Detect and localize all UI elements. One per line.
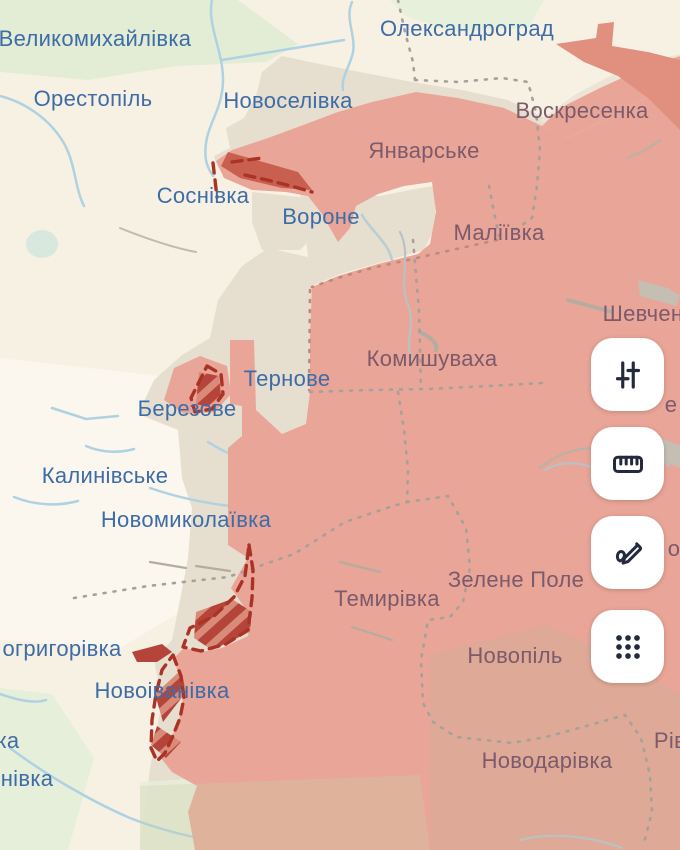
map-app: ВеликомихайлівкаОлександроградОрестопіль… [0, 0, 680, 850]
draw-button[interactable] [591, 516, 664, 589]
sliders-icon [610, 357, 646, 393]
measure-button[interactable] [591, 427, 664, 500]
apps-button[interactable] [591, 610, 664, 683]
draw-icon [610, 535, 646, 571]
filters-button[interactable] [591, 338, 664, 411]
map-canvas[interactable] [0, 0, 680, 850]
grid-dots-icon [610, 629, 646, 665]
ruler-icon [610, 446, 646, 482]
